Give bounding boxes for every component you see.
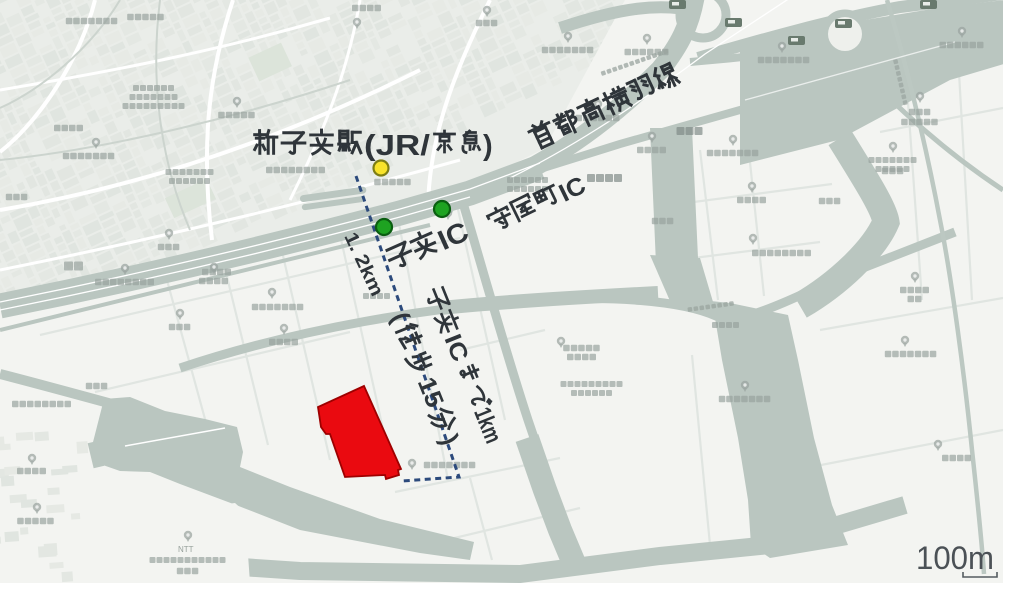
svg-text:): ) [483,130,493,162]
svg-text:NTT: NTT [178,545,194,554]
svg-text:(JR/: (JR/ [364,130,430,162]
svg-text:100m: 100m [916,540,994,576]
